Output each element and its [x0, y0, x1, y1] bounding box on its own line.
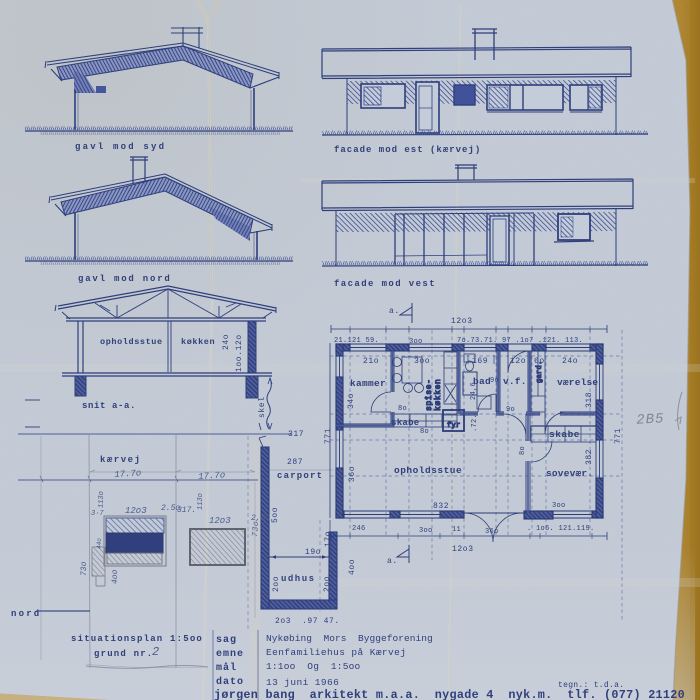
- svg-text:carport: carport: [277, 471, 323, 481]
- svg-text:1:1oo Og 1:5oo: 1:1oo Og 1:5oo: [266, 661, 361, 672]
- svg-text:24o: 24o: [562, 357, 578, 366]
- svg-text:opholdsstue: opholdsstue: [394, 465, 462, 476]
- svg-text:kammer: kammer: [350, 378, 386, 389]
- svg-text:6o: 6o: [534, 357, 545, 366]
- svg-text:12o3: 12o3: [125, 506, 147, 516]
- svg-text:2,5o: 2,5o: [251, 514, 270, 523]
- svg-text:skel: skel: [258, 396, 267, 418]
- svg-text:4oo: 4oo: [111, 569, 120, 584]
- svg-text:73o: 73o: [80, 561, 89, 576]
- svg-text:44o: 44o: [96, 538, 103, 549]
- svg-text:skabe: skabe: [391, 418, 420, 428]
- svg-text:situationsplan 1:5oo: situationsplan 1:5oo: [71, 634, 203, 644]
- svg-text:246: 246: [352, 525, 366, 533]
- svg-text:udhus: udhus: [281, 574, 316, 584]
- svg-text:2B5: 2B5: [636, 411, 665, 428]
- svg-text:a.: a.: [389, 307, 400, 316]
- svg-text:113o: 113o: [98, 491, 106, 508]
- svg-text:skabe: skabe: [549, 429, 580, 440]
- svg-text:12o3: 12o3: [451, 317, 473, 326]
- svg-text:værelse: værelse: [557, 377, 598, 388]
- svg-text:3oo: 3oo: [414, 357, 430, 366]
- svg-text:3oo: 3oo: [552, 502, 566, 510]
- svg-text:facade mod est (kærvej): facade mod est (kærvej): [334, 145, 481, 155]
- svg-text:a.: a.: [387, 557, 398, 566]
- svg-text:771: 771: [614, 428, 623, 444]
- svg-text:3·7: 3·7: [91, 510, 104, 518]
- svg-text:8o: 8o: [420, 428, 429, 436]
- svg-text:169: 169: [472, 357, 488, 366]
- svg-text:.72.: .72.: [471, 414, 479, 432]
- svg-text:12o3: 12o3: [209, 516, 231, 526]
- svg-text:11: 11: [452, 526, 461, 534]
- svg-text:318: 318: [585, 392, 594, 408]
- svg-text:. 1o6. 121.119.: . 1o6. 121.119.: [527, 525, 595, 533]
- svg-text:8o: 8o: [519, 446, 527, 455]
- svg-text:317: 317: [288, 430, 304, 439]
- svg-text:opholdsstue: opholdsstue: [100, 337, 163, 347]
- svg-text:8o: 8o: [398, 405, 407, 413]
- svg-text:24,6: 24,6: [470, 382, 478, 400]
- svg-text:kærvej: kærvej: [100, 455, 141, 465]
- svg-text:21o: 21o: [363, 357, 379, 366]
- svg-text:sag: sag: [216, 635, 237, 646]
- svg-text:12o3: 12o3: [452, 545, 474, 554]
- svg-text:2o3 .97 47.: 2o3 .97 47.: [275, 617, 340, 626]
- svg-text:9o: 9o: [490, 377, 499, 385]
- svg-text:2: 2: [152, 645, 159, 659]
- svg-text:36o: 36o: [348, 466, 357, 482]
- svg-text:19o: 19o: [305, 548, 321, 557]
- svg-text:sovevær.: sovevær.: [546, 468, 593, 479]
- svg-text:2oo: 2oo: [272, 576, 281, 592]
- svg-text:emne: emne: [216, 649, 244, 660]
- svg-text:mål: mål: [216, 662, 237, 674]
- svg-text:2oo: 2oo: [323, 576, 332, 592]
- svg-text:17.7o: 17.7o: [198, 470, 226, 482]
- svg-text:dato: dato: [216, 676, 244, 688]
- svg-text:12o: 12o: [510, 357, 526, 366]
- svg-text:382: 382: [585, 449, 594, 465]
- svg-text:5oo: 5oo: [271, 507, 280, 523]
- svg-text:17.7o: 17.7o: [114, 468, 142, 480]
- svg-text:317.: 317.: [177, 506, 196, 515]
- svg-text:spîse-: spîse-: [425, 379, 434, 411]
- svg-text:gavl mod nord: gavl mod nord: [78, 274, 172, 284]
- svg-text:9o: 9o: [506, 406, 515, 414]
- svg-text:3oo: 3oo: [409, 338, 423, 346]
- svg-text:24o: 24o: [222, 334, 231, 350]
- svg-text:832: 832: [433, 502, 449, 511]
- svg-text:1oo.12o: 1oo.12o: [235, 334, 244, 372]
- svg-text:113o: 113o: [197, 493, 205, 510]
- svg-text:facade mod vest: facade mod vest: [334, 279, 436, 289]
- svg-text:Eenfamiliehus på Kærvej: Eenfamiliehus på Kærvej: [266, 647, 406, 658]
- svg-text:gavl mod syd: gavl mod syd: [75, 142, 166, 152]
- svg-text:køkken: køkken: [181, 337, 215, 347]
- svg-text:grund nr.: grund nr.: [94, 649, 153, 659]
- svg-text:v.f.: v.f.: [503, 376, 527, 387]
- svg-text:Nykøbing Mors Byggeforening: Nykøbing Mors Byggeforening: [266, 633, 433, 644]
- svg-text:17o: 17o: [324, 531, 333, 547]
- svg-text:13 juni 1966: 13 juni 1966: [266, 677, 339, 688]
- svg-text:køkken: køkken: [434, 379, 443, 411]
- svg-text:771: 771: [324, 428, 333, 444]
- svg-text:fyr: fyr: [447, 422, 461, 430]
- svg-text:snit a-a.: snit a-a.: [82, 401, 136, 411]
- svg-text:jørgen bang arkitekt m.a.a.: jørgen bang arkitekt m.a.a. nygade 4 nyk…: [214, 688, 685, 700]
- svg-text:3oo: 3oo: [419, 527, 433, 535]
- svg-text:34o: 34o: [347, 393, 356, 409]
- svg-text:4oo: 4oo: [348, 559, 357, 575]
- svg-text:287: 287: [287, 458, 303, 467]
